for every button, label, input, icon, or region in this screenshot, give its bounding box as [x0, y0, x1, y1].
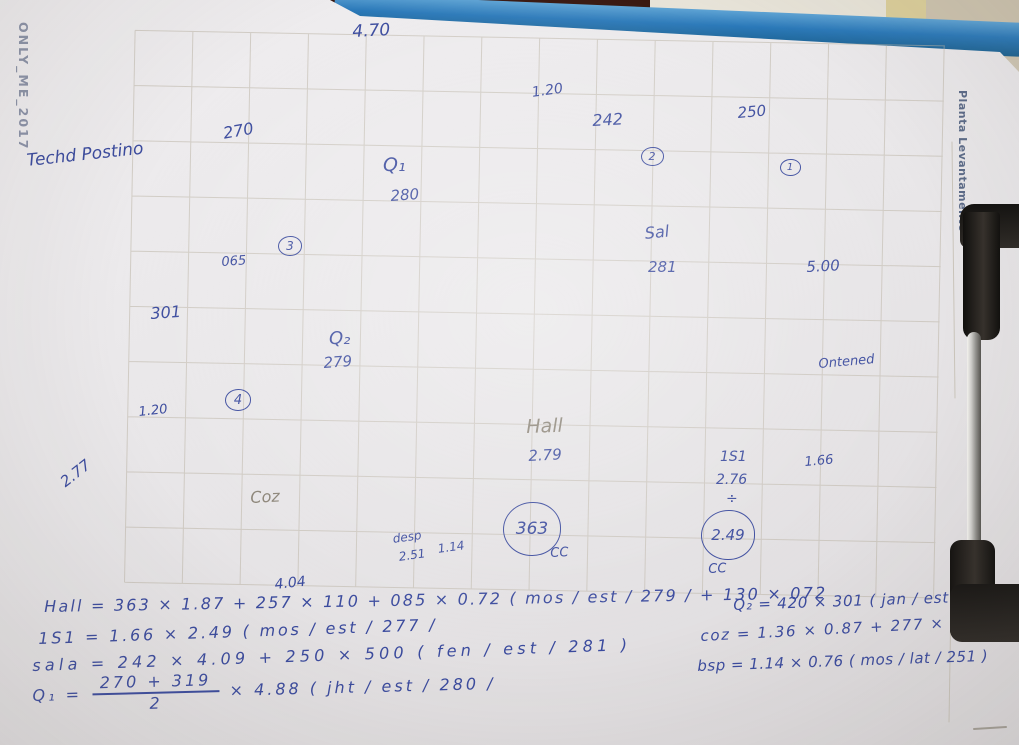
- label-dim-166: 1.66: [804, 453, 834, 469]
- label-dim-301: 301: [150, 304, 182, 323]
- circled-val-363: 363: [503, 502, 561, 556]
- label-dim-404: 4.04: [274, 575, 307, 593]
- formula-q1-tail: × 4.88 ( jht / est / 280 /: [229, 674, 495, 700]
- label-dim-276: 2.76: [716, 473, 747, 488]
- circled-ref-2: 2: [641, 147, 664, 166]
- label-dim-242: 242: [592, 111, 623, 129]
- label-dim-120-left: 1.20: [138, 403, 168, 420]
- label-room-1s1: 1S1: [720, 450, 747, 465]
- label-dim-250: 250: [737, 104, 767, 122]
- label-cc-right: CC: [708, 562, 727, 577]
- circled-val-249: 2.49: [701, 510, 755, 560]
- label-room-sal: Sal: [644, 223, 670, 242]
- label-dim-470: 4.70: [352, 22, 391, 42]
- label-dim-065: 065: [221, 254, 247, 269]
- formula-q1-lead: Q₁ =: [32, 685, 82, 705]
- clip-metal-rod: [967, 332, 981, 548]
- label-cc-left: CC: [550, 546, 569, 561]
- label-dim-279-hall: 2.79: [528, 447, 562, 464]
- label-room-q1: Q₁: [383, 156, 406, 176]
- label-room-q2: Q₂: [329, 330, 350, 349]
- formula-q1-fraction: 270 + 319 2: [91, 671, 220, 714]
- label-room-coz: Coz: [250, 488, 280, 506]
- circled-ref-3: 3: [278, 236, 302, 256]
- circled-ref-1: 1: [780, 159, 801, 176]
- label-dim-280: 280: [390, 187, 420, 205]
- clip-bottom-arm: [950, 584, 1019, 642]
- label-dim-500: 5.00: [806, 258, 840, 275]
- formula-q1-denominator: 2: [149, 693, 163, 712]
- label-dim-279-q2: 279: [323, 354, 353, 372]
- formula-q1-numerator: 270 + 319: [91, 671, 219, 695]
- clip-top-stem: [963, 212, 1000, 340]
- photo-of-floor-plan-sketch: 4.702701.20242250Q₁280065301Q₂2791.20Sal…: [0, 0, 1019, 745]
- label-room-hall: Hall: [526, 417, 563, 438]
- label-divide-mark: ÷: [726, 492, 738, 507]
- circled-ref-4: 4: [225, 389, 251, 411]
- label-dim-281: 281: [648, 260, 677, 276]
- watermark-only-me: ONLY_ME_2017: [16, 22, 31, 150]
